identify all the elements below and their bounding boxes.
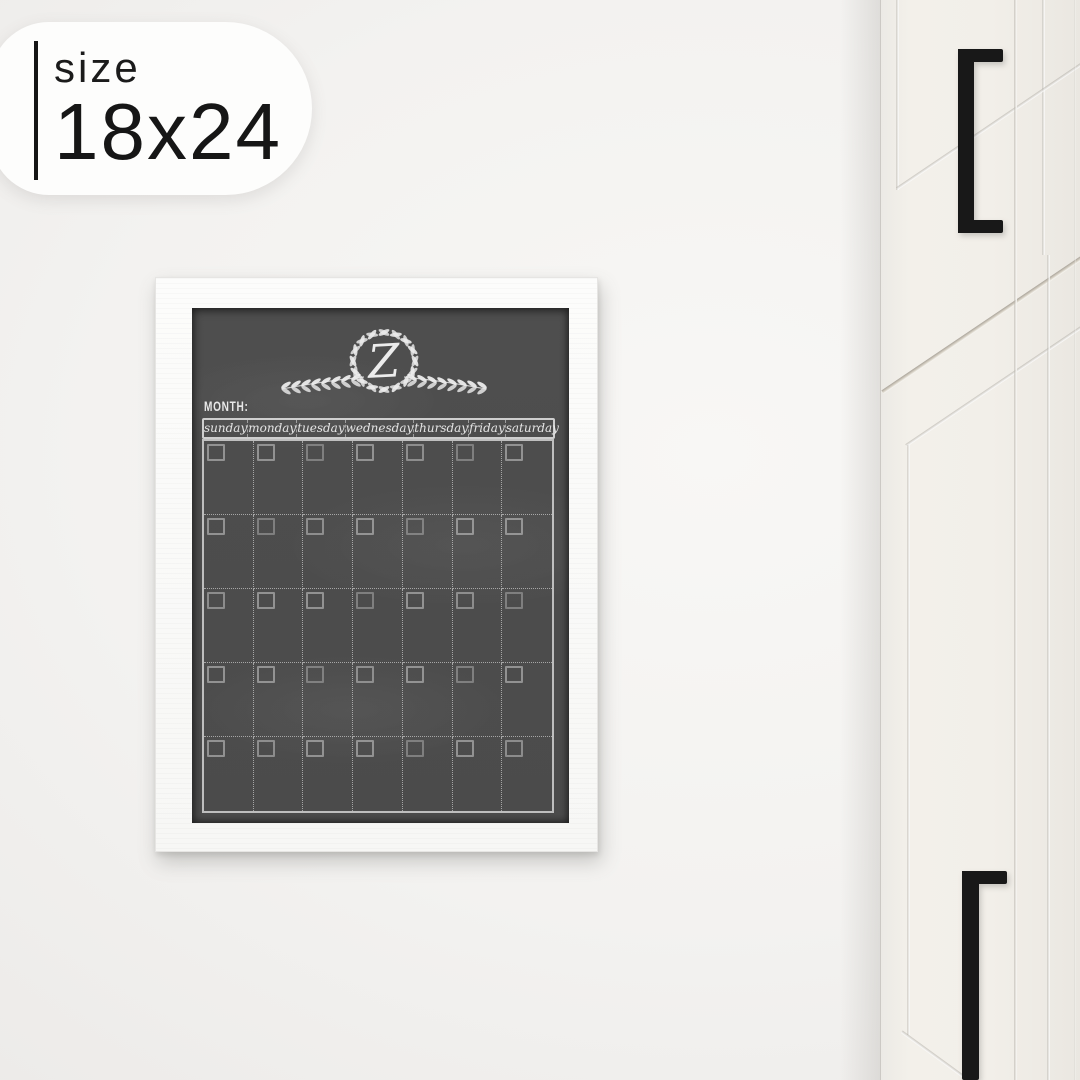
upper-panel-left-groove — [896, 0, 899, 190]
date-box — [257, 518, 275, 535]
calendar-frame: Z MONTH: sunday monday tuesday wednesday… — [155, 277, 598, 852]
date-box — [406, 518, 424, 535]
grid-cell — [303, 663, 353, 737]
grid-cell — [453, 737, 503, 811]
chalkboard: Z MONTH: sunday monday tuesday wednesday… — [192, 308, 569, 823]
cabinet-door-seam — [881, 256, 1080, 394]
date-box — [257, 740, 275, 757]
date-box — [306, 740, 324, 757]
date-box — [456, 444, 474, 461]
grid-cell — [254, 515, 304, 589]
grid-cell — [353, 589, 403, 663]
grid-cell — [453, 441, 503, 515]
upper-panel-right-groove — [1042, 0, 1045, 255]
date-box — [406, 444, 424, 461]
grid-cell — [254, 441, 304, 515]
grid-cell — [453, 515, 503, 589]
cabinet-handle-upper — [958, 49, 1004, 233]
date-box — [456, 518, 474, 535]
grid-cell — [353, 737, 403, 811]
date-box — [456, 592, 474, 609]
grid-cell — [403, 441, 453, 515]
grid-cell — [303, 515, 353, 589]
date-box — [505, 666, 523, 683]
date-box — [406, 666, 424, 683]
date-box — [356, 592, 374, 609]
day-header-saturday: saturday — [505, 420, 559, 437]
grid-cell — [353, 663, 403, 737]
day-header-monday: monday — [247, 420, 296, 437]
date-box — [306, 518, 324, 535]
door-gap-line — [1014, 0, 1017, 1080]
grid-cell — [502, 737, 552, 811]
wall-cabinet-shadow — [840, 0, 880, 1080]
date-box — [207, 592, 225, 609]
month-grid — [202, 439, 554, 813]
date-box — [257, 666, 275, 683]
day-header-thursday: thursday — [413, 420, 468, 437]
day-header-wednesday: wednesday — [345, 420, 414, 437]
date-box — [257, 592, 275, 609]
grid-cell — [353, 441, 403, 515]
date-box — [505, 740, 523, 757]
handle-bar — [962, 871, 979, 1080]
date-box — [356, 740, 374, 757]
date-box — [306, 444, 324, 461]
date-box — [505, 518, 523, 535]
grid-cell — [403, 589, 453, 663]
grid-cell — [254, 663, 304, 737]
date-box — [257, 444, 275, 461]
month-label: MONTH: — [204, 398, 249, 414]
monogram: Z — [364, 333, 402, 389]
far-right-groove — [1074, 0, 1076, 1080]
day-header-friday: friday — [468, 420, 505, 437]
cabinet — [880, 0, 1080, 1080]
grid-cell — [303, 589, 353, 663]
grid-cell — [204, 663, 254, 737]
laurel-wreath-icon: Z — [276, 314, 492, 408]
product-photo-scene: size 18x24 Z MONTH: sunday monday tuesda… — [0, 0, 1080, 1080]
day-header-row: sunday monday tuesday wednesday thursday… — [202, 418, 555, 439]
date-box — [456, 740, 474, 757]
date-box — [406, 740, 424, 757]
grid-cell — [303, 737, 353, 811]
grid-cell — [204, 441, 254, 515]
date-box — [456, 666, 474, 683]
lower-panel-left-groove — [907, 445, 910, 1035]
right-door-stile-groove — [1047, 255, 1050, 1080]
grid-cell — [502, 441, 552, 515]
grid-cell — [403, 737, 453, 811]
grid-cell — [453, 589, 503, 663]
size-badge: size 18x24 — [0, 22, 312, 195]
handle-bar — [958, 49, 974, 233]
date-box — [207, 666, 225, 683]
grid-cell — [502, 515, 552, 589]
date-box — [356, 444, 374, 461]
grid-cell — [353, 515, 403, 589]
day-header-tuesday: tuesday — [296, 420, 344, 437]
grid-cell — [254, 737, 304, 811]
size-value: 18x24 — [54, 84, 282, 180]
grid-cell — [403, 663, 453, 737]
grid-cell — [303, 441, 353, 515]
badge-divider — [34, 41, 38, 180]
date-box — [505, 444, 523, 461]
grid-cell — [502, 663, 552, 737]
day-header-sunday: sunday — [204, 420, 247, 437]
grid-cell — [403, 515, 453, 589]
cabinet-handle-lower — [962, 871, 1008, 1080]
date-box — [207, 740, 225, 757]
date-box — [505, 592, 523, 609]
grid-cell — [254, 589, 304, 663]
grid-cell — [204, 589, 254, 663]
grid-cell — [453, 663, 503, 737]
grid-cell — [204, 737, 254, 811]
date-box — [356, 666, 374, 683]
lower-panel-corner-miter — [901, 1030, 968, 1080]
lower-panel-top-bevel — [905, 326, 1080, 446]
date-box — [356, 518, 374, 535]
date-box — [306, 666, 324, 683]
grid-cell — [502, 589, 552, 663]
grid-cell — [204, 515, 254, 589]
date-box — [406, 592, 424, 609]
date-box — [207, 444, 225, 461]
date-box — [207, 518, 225, 535]
date-box — [306, 592, 324, 609]
